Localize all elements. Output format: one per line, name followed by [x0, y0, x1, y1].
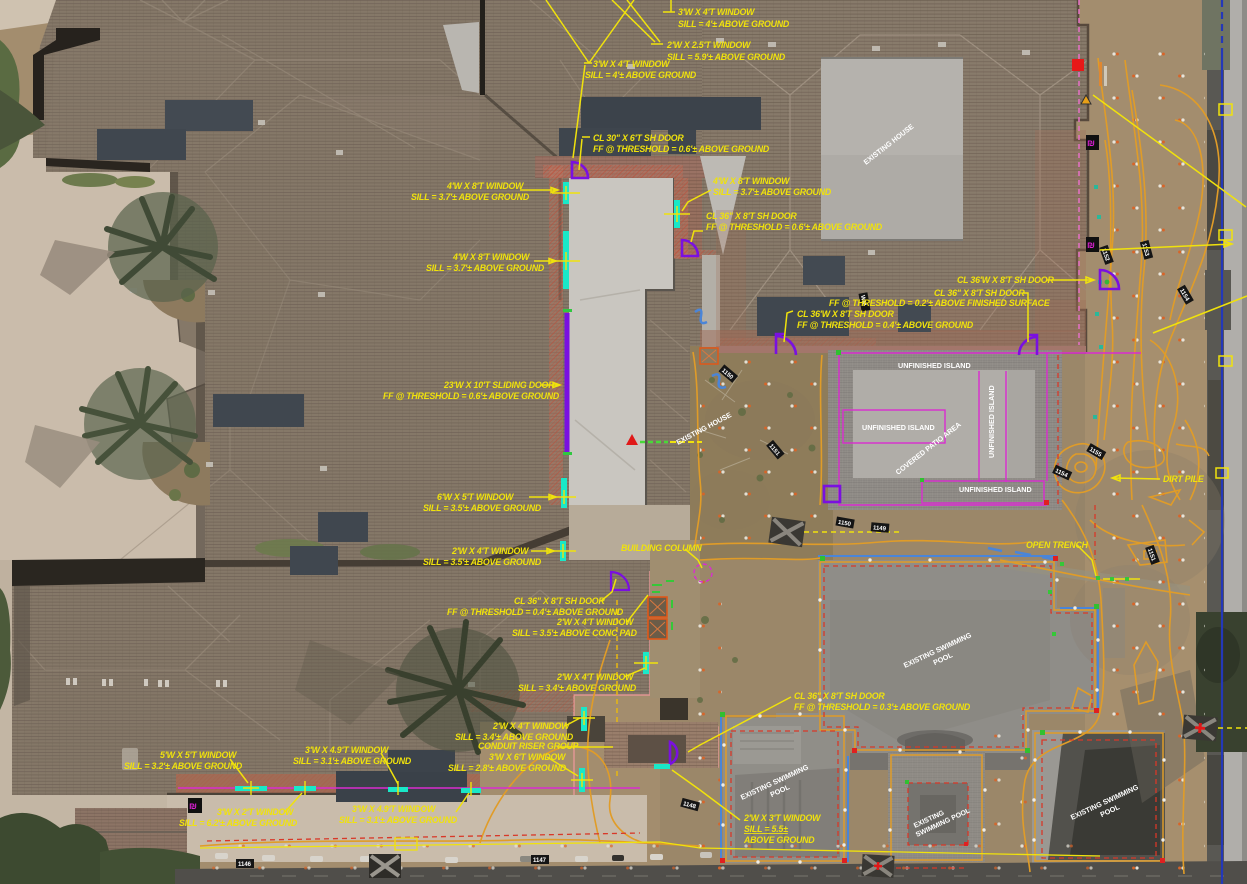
- svg-text:3'W X 4.9'T WINDOW: 3'W X 4.9'T WINDOW: [305, 745, 389, 755]
- svg-text:SILL = 3.1'± ABOVE GROUND: SILL = 3.1'± ABOVE GROUND: [293, 756, 412, 766]
- svg-text:2'W X 4'T WINDOW: 2'W X 4'T WINDOW: [492, 721, 570, 731]
- svg-text:2'W X 4'T WINDOW: 2'W X 4'T WINDOW: [451, 546, 529, 556]
- svg-text:3'W X 2'T WINDOW: 3'W X 2'T WINDOW: [217, 807, 294, 817]
- svg-text:SILL = 3.5'± ABOVE GROUND: SILL = 3.5'± ABOVE GROUND: [423, 557, 542, 567]
- svg-text:FF @ THRESHOLD = 0.2'± ABOVE F: FF @ THRESHOLD = 0.2'± ABOVE FINISHED SU…: [829, 298, 1051, 308]
- svg-text:3'W X 4'T WINDOW: 3'W X 4'T WINDOW: [678, 7, 755, 17]
- svg-text:CL 36'W X 8'T SH DOOR: CL 36'W X 8'T SH DOOR: [797, 309, 894, 319]
- svg-text:1146: 1146: [238, 862, 252, 868]
- svg-text:2'W X 3'T WINDOW: 2'W X 3'T WINDOW: [743, 813, 821, 823]
- svg-text:2'W X 4'T WINDOW: 2'W X 4'T WINDOW: [556, 617, 634, 627]
- svg-text:4'W X 8'T WINDOW: 4'W X 8'T WINDOW: [712, 176, 790, 186]
- svg-text:FF @ THRESHOLD = 0.6'± ABOVE G: FF @ THRESHOLD = 0.6'± ABOVE GROUND: [383, 391, 560, 401]
- svg-text:5'W X 5'T WINDOW: 5'W X 5'T WINDOW: [160, 750, 237, 760]
- svg-text:SILL = 3.5'± ABOVE GROUND: SILL = 3.5'± ABOVE GROUND: [423, 503, 542, 513]
- svg-text:SILL = 3.5'± ABOVE CONC PAD: SILL = 3.5'± ABOVE CONC PAD: [512, 628, 638, 638]
- svg-text:SILL = 5.9'± ABOVE GROUND: SILL = 5.9'± ABOVE GROUND: [667, 52, 786, 62]
- svg-text:UNFINISHED ISLAND: UNFINISHED ISLAND: [987, 385, 996, 458]
- svg-text:SILL = 3.1'± ABOVE GROUND: SILL = 3.1'± ABOVE GROUND: [339, 815, 458, 825]
- svg-text:SILL = 4'± ABOVE GROUND: SILL = 4'± ABOVE GROUND: [585, 70, 697, 80]
- svg-text:23'W X 10'T SLIDING DOOR: 23'W X 10'T SLIDING DOOR: [443, 380, 555, 390]
- svg-text:4'W X 8'T WINDOW: 4'W X 8'T WINDOW: [446, 181, 524, 191]
- svg-text:SILL = 3.7'± ABOVE GROUND: SILL = 3.7'± ABOVE GROUND: [426, 263, 545, 273]
- svg-text:CL 36" X 8'T SH DOOR: CL 36" X 8'T SH DOOR: [794, 691, 885, 701]
- svg-text:FF @ THRESHOLD = 0.4'± ABOVE G: FF @ THRESHOLD = 0.4'± ABOVE GROUND: [447, 607, 624, 617]
- svg-text:3'W X 6'T WINDOW: 3'W X 6'T WINDOW: [489, 752, 566, 762]
- svg-text:FF @ THRESHOLD = 0.6'± ABOVE G: FF @ THRESHOLD = 0.6'± ABOVE GROUND: [706, 222, 883, 232]
- svg-text:CL 36" X 8'T SH DOOR: CL 36" X 8'T SH DOOR: [514, 596, 605, 606]
- svg-text:SILL = 3.2'± ABOVE GROUND: SILL = 3.2'± ABOVE GROUND: [124, 761, 243, 771]
- svg-text:1149: 1149: [873, 525, 887, 532]
- svg-text:SILL = 3.7'± ABOVE GROUND: SILL = 3.7'± ABOVE GROUND: [411, 192, 530, 202]
- svg-text:UNFINISHED ISLAND: UNFINISHED ISLAND: [862, 423, 935, 432]
- svg-text:SILL = 4'± ABOVE GROUND: SILL = 4'± ABOVE GROUND: [678, 19, 790, 29]
- svg-text:FF @ THRESHOLD = 0.3'± ABOVE G: FF @ THRESHOLD = 0.3'± ABOVE GROUND: [794, 702, 971, 712]
- svg-text:3'W X 4'T WINDOW: 3'W X 4'T WINDOW: [593, 59, 670, 69]
- svg-text:SILL = 6.2'± ABOVE GROUND: SILL = 6.2'± ABOVE GROUND: [179, 818, 298, 828]
- svg-text:2'W X 4'T WINDOW: 2'W X 4'T WINDOW: [556, 672, 634, 682]
- svg-text:CONDUIT RISER GROUP: CONDUIT RISER GROUP: [478, 741, 579, 751]
- svg-text:FF @ THRESHOLD = 0.6'± ABOVE G: FF @ THRESHOLD = 0.6'± ABOVE GROUND: [593, 144, 770, 154]
- svg-text:1147: 1147: [533, 858, 547, 864]
- svg-text:CL 30" X 6'T SH DOOR: CL 30" X 6'T SH DOOR: [593, 133, 684, 143]
- svg-text:SILL = 5.5±: SILL = 5.5±: [744, 824, 788, 834]
- svg-text:SILL = 3.4'± ABOVE GROUND: SILL = 3.4'± ABOVE GROUND: [518, 683, 637, 693]
- svg-text:₪: ₪: [1087, 240, 1095, 250]
- svg-text:UNFINISHED ISLAND: UNFINISHED ISLAND: [898, 361, 971, 370]
- svg-text:ABOVE GROUND: ABOVE GROUND: [743, 835, 815, 845]
- svg-text:BUILDING COLUMN: BUILDING COLUMN: [621, 543, 702, 553]
- svg-text:UNFINISHED ISLAND: UNFINISHED ISLAND: [959, 485, 1032, 494]
- svg-text:DIRT PILE: DIRT PILE: [1163, 474, 1205, 484]
- svg-text:CL 36" X 8'T SH DOOR: CL 36" X 8'T SH DOOR: [706, 211, 797, 221]
- svg-text:SILL = 3.7'± ABOVE GROUND: SILL = 3.7'± ABOVE GROUND: [713, 187, 832, 197]
- svg-text:6'W X 5'T WINDOW: 6'W X 5'T WINDOW: [437, 492, 514, 502]
- svg-text:4'W X 8'T WINDOW: 4'W X 8'T WINDOW: [452, 252, 530, 262]
- svg-text:3'W X 4.9'T WINDOW: 3'W X 4.9'T WINDOW: [352, 804, 436, 814]
- svg-text:CL 36'W X 8'T SH DOOR: CL 36'W X 8'T SH DOOR: [957, 275, 1054, 285]
- svg-text:SILL = 2.8'± ABOVE GROUND: SILL = 2.8'± ABOVE GROUND: [448, 763, 567, 773]
- svg-text:FF @ THRESHOLD = 0.4'± ABOVE G: FF @ THRESHOLD = 0.4'± ABOVE GROUND: [797, 320, 974, 330]
- svg-text:₪: ₪: [189, 801, 197, 811]
- svg-text:2'W X 2.5'T WINDOW: 2'W X 2.5'T WINDOW: [666, 40, 751, 50]
- svg-text:CL 36" X 8'T SH DOOR: CL 36" X 8'T SH DOOR: [934, 288, 1025, 298]
- svg-text:OPEN TRENCH: OPEN TRENCH: [1026, 540, 1089, 550]
- svg-text:₪: ₪: [1087, 138, 1095, 148]
